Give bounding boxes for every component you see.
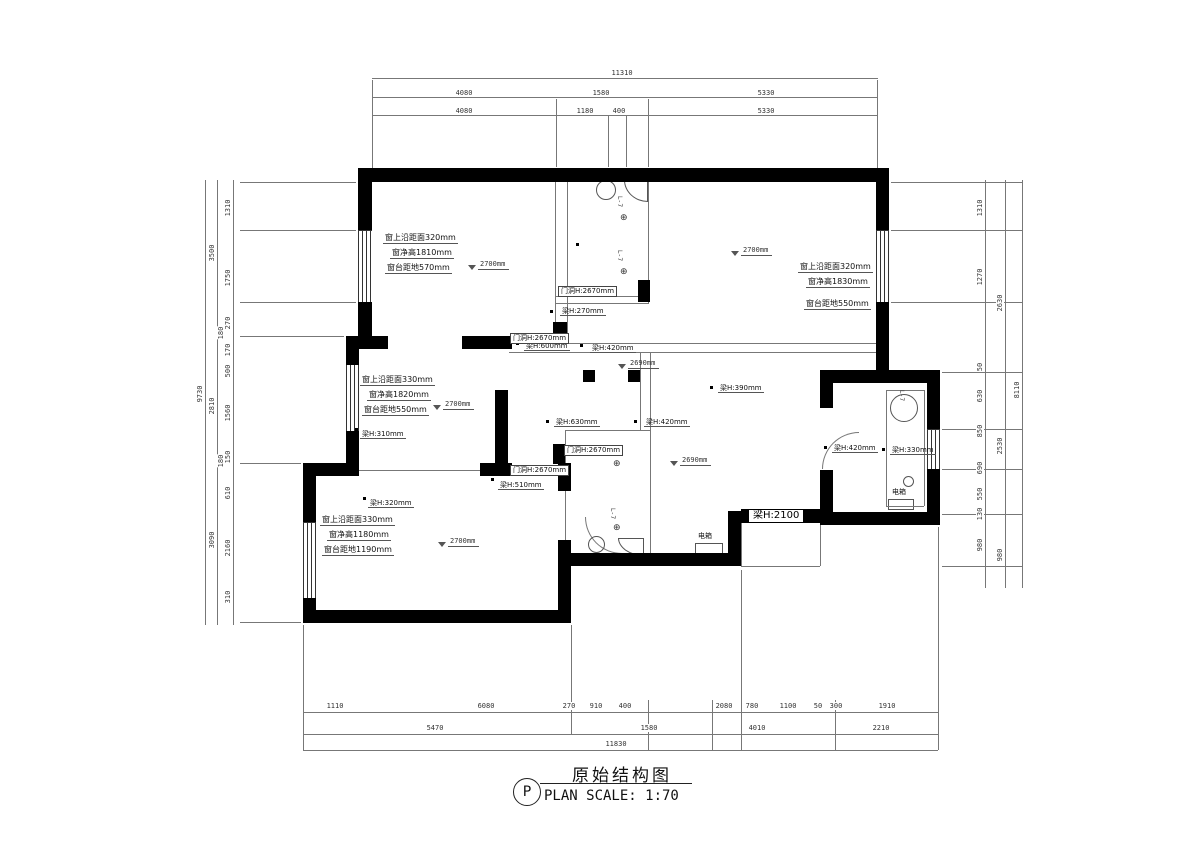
wall-segment: [358, 302, 372, 338]
dim-bottom-overall: 11830: [604, 740, 627, 748]
dim-bottom: 6080: [477, 702, 496, 710]
beam-note: 梁H:420mm: [832, 444, 878, 453]
leader-dot: [824, 446, 827, 449]
dim-bottom: 1910: [878, 702, 897, 710]
dim-right: 630: [976, 390, 984, 403]
thin-line: [359, 470, 480, 471]
window-note: 窗上沿距面330mm: [360, 375, 435, 386]
plan-tag-circle: P: [513, 778, 541, 806]
dim-left: 270: [224, 317, 232, 330]
window-note: 窗台距地570mm: [385, 263, 452, 274]
floor-drain-icon: ⊕: [620, 268, 628, 277]
dim-right: 980: [996, 549, 1004, 562]
thin-line: [372, 78, 878, 79]
door-opening-note: 门洞H:2670mm: [510, 465, 569, 476]
leader-dot: [580, 344, 583, 347]
beam-note: 梁H:270mm: [560, 307, 606, 316]
level-icon: [731, 251, 739, 256]
window-hatch: [303, 522, 316, 600]
thin-line: [741, 523, 742, 566]
dim-bottom: 50: [813, 702, 823, 710]
electrical-box-label: 电箱: [892, 488, 906, 496]
wall-segment: [303, 476, 316, 522]
beam-note: 梁H:310mm: [360, 430, 406, 439]
fixture-circle: [588, 536, 605, 553]
dim-right: 980: [976, 539, 984, 552]
riser-label: L-7: [898, 390, 905, 402]
dim-right: 1270: [976, 269, 984, 286]
thin-line: [240, 302, 356, 303]
window-note: 窗上沿距面320mm: [798, 262, 873, 273]
dim-top: 1180: [576, 107, 595, 115]
thin-line: [555, 303, 649, 304]
thin-line: [886, 506, 924, 507]
thin-line: [891, 230, 1022, 231]
dim-top: 5330: [757, 107, 776, 115]
dim-bottom: 5470: [426, 724, 445, 732]
riser-label: L-7: [609, 508, 616, 520]
leader-dot: [550, 310, 553, 313]
thin-line: [240, 336, 344, 337]
dim-bottom: 4010: [748, 724, 767, 732]
dim-top: 5330: [757, 89, 776, 97]
dim-right: 550: [976, 488, 984, 501]
wall-segment: [303, 598, 316, 623]
leader-dot: [363, 497, 366, 500]
beam-note: 梁H:420mm: [644, 418, 690, 427]
thin-line: [942, 372, 1022, 373]
leader-dot: [634, 420, 637, 423]
dim-left: 3090: [208, 532, 216, 549]
thin-line: [372, 97, 878, 98]
thin-line: [1005, 180, 1006, 588]
thin-line: [372, 115, 878, 116]
thin-line: [985, 180, 986, 588]
dim-left: 1310: [224, 200, 232, 217]
wall-segment: [927, 469, 940, 525]
electrical-box-symbol: [888, 499, 914, 510]
beam-note: 梁H:510mm: [498, 481, 544, 490]
dim-right: 130: [976, 508, 984, 521]
dim-left: 1560: [224, 405, 232, 422]
dim-left: 150: [224, 451, 232, 464]
dim-right: 50: [976, 363, 984, 371]
thin-line: [303, 734, 938, 735]
dim-bottom: 1110: [326, 702, 345, 710]
thin-line: [877, 80, 878, 168]
floor-plan: ⊕⊕⊕⊕ 11310 4080 1580 5330 4080 1180 400 …: [0, 0, 1200, 848]
riser-label: L-7: [616, 196, 623, 208]
wall-segment: [480, 463, 512, 476]
ceiling-height-marker: 2700mm: [731, 246, 772, 256]
wall-segment: [462, 336, 512, 349]
leader-dot: [355, 428, 358, 431]
window-note: 窗净高1810mm: [390, 248, 454, 259]
leader-dot: [710, 386, 713, 389]
dim-bottom: 2080: [715, 702, 734, 710]
dim-right: 690: [976, 462, 984, 475]
thin-line: [205, 180, 206, 625]
dim-bottom: 1100: [779, 702, 798, 710]
thin-line: [650, 430, 651, 553]
dim-left: 500: [224, 365, 232, 378]
thin-line: [626, 115, 627, 167]
window-note: 窗台距地550mm: [804, 299, 871, 310]
leader-dot: [576, 243, 579, 246]
thin-line: [303, 625, 304, 750]
level-icon: [618, 364, 626, 369]
dim-right: 1310: [976, 200, 984, 217]
thin-line: [820, 523, 821, 566]
electrical-box-label: 电箱: [698, 532, 712, 540]
dim-right: 2630: [996, 295, 1004, 312]
thin-line: [886, 390, 887, 506]
dim-left: 3500: [208, 245, 216, 262]
dim-left: 2160: [224, 540, 232, 557]
wall-segment: [495, 390, 508, 472]
beam-note: 梁H:390mm: [718, 384, 764, 393]
dim-top: 1580: [592, 89, 611, 97]
dim-left: 610: [224, 487, 232, 500]
dim-bottom: 1580: [640, 724, 659, 732]
ceiling-height-marker: 2700mm: [468, 260, 509, 270]
thin-line: [741, 570, 742, 750]
level-icon: [433, 405, 441, 410]
thin-line: [571, 625, 572, 735]
thin-line: [741, 566, 820, 567]
beam-note: 梁H:420mm: [590, 344, 636, 353]
wall-segment: [358, 182, 372, 230]
window-hatch: [358, 230, 372, 304]
door-opening-note: 门洞H:2670mm: [510, 333, 569, 344]
dim-left-leader: 180: [217, 455, 225, 468]
thin-line: [886, 390, 924, 391]
wall-segment: [358, 168, 889, 182]
window-note: 窗净高1180mm: [327, 530, 391, 541]
dim-left: 310: [224, 591, 232, 604]
level-icon: [438, 542, 446, 547]
thin-line: [648, 99, 649, 167]
thin-line: [303, 712, 938, 713]
thin-line: [1022, 180, 1023, 588]
window-note: 窗台距地1190mm: [322, 545, 394, 556]
dim-top: 400: [612, 107, 627, 115]
thin-line: [233, 180, 234, 625]
dim-right-overall: 8110: [1013, 382, 1021, 399]
door-opening-note: 门洞H:2670mm: [558, 286, 617, 297]
ceiling-height-marker: 2690mm: [670, 456, 711, 466]
thin-line: [217, 180, 218, 625]
thin-line: [240, 463, 301, 464]
beam-note: 梁H:630mm: [554, 418, 600, 427]
level-icon: [468, 265, 476, 270]
floor-drain-icon: ⊕: [620, 214, 628, 223]
beam-note-boxed: 梁H:2100: [748, 509, 804, 523]
dim-bottom: 910: [589, 702, 604, 710]
dim-bottom: 780: [745, 702, 760, 710]
dim-bottom: 2210: [872, 724, 891, 732]
wall-segment: [876, 182, 889, 230]
dim-left: 170: [224, 344, 232, 357]
ceiling-height-marker: 2700mm: [433, 400, 474, 410]
thin-line: [240, 622, 301, 623]
dim-bottom: 400: [618, 702, 633, 710]
wall-segment: [927, 383, 940, 429]
window-note: 窗上沿距面320mm: [383, 233, 458, 244]
wall-segment: [820, 512, 940, 525]
thin-line: [240, 230, 356, 231]
thin-line: [608, 115, 609, 167]
thin-line: [372, 80, 373, 168]
wall-segment: [820, 470, 833, 512]
floor-drain-icon: ⊕: [613, 460, 621, 469]
wall-segment: [638, 280, 650, 302]
window-hatch: [876, 230, 889, 304]
dim-right: 2530: [996, 438, 1004, 455]
window-note: 窗净高1830mm: [806, 277, 870, 288]
thin-line: [303, 750, 938, 751]
wall-segment: [346, 349, 359, 365]
thin-line: [712, 700, 713, 750]
dim-left: 1750: [224, 270, 232, 287]
ceiling-height-marker: 2700mm: [438, 537, 479, 547]
leader-dot: [882, 448, 885, 451]
wall-segment: [628, 370, 640, 382]
leader-dot: [546, 420, 549, 423]
beam-note: 梁H:330mm: [890, 446, 936, 455]
thin-line: [555, 182, 556, 336]
plan-scale-label: PLAN SCALE: 1:70: [544, 788, 679, 804]
dim-top: 4080: [455, 107, 474, 115]
dim-left-leader: 180: [217, 327, 225, 340]
title-divider: [540, 783, 692, 784]
window-hatch: [346, 363, 359, 433]
leader-dot: [491, 478, 494, 481]
wall-segment: [820, 383, 833, 408]
wall-segment: [303, 610, 571, 623]
dim-left: 2810: [208, 398, 216, 415]
dim-left-overall: 9730: [196, 386, 204, 403]
wall-segment: [346, 431, 359, 472]
dim-top-overall: 11310: [610, 69, 633, 77]
dim-bottom: 270: [562, 702, 577, 710]
level-icon: [670, 461, 678, 466]
riser-label: L-7: [616, 250, 623, 262]
thin-line: [556, 99, 557, 167]
ceiling-height-marker: 2690mm: [618, 359, 659, 369]
thin-line: [509, 352, 876, 353]
wall-segment: [820, 370, 940, 383]
window-note: 窗上沿距面330mm: [320, 515, 395, 526]
window-note: 窗净高1820mm: [367, 390, 431, 401]
fixture-corner: [624, 180, 648, 202]
thin-line: [938, 527, 939, 750]
thin-line: [565, 430, 650, 431]
thin-line: [891, 182, 1022, 183]
dim-bottom: 300: [829, 702, 844, 710]
beam-note: 梁H:320mm: [368, 499, 414, 508]
fixture-circle: [903, 476, 914, 487]
wall-segment: [583, 370, 595, 382]
fixture-circle: [596, 180, 616, 200]
window-note: 窗台距地550mm: [362, 405, 429, 416]
thin-line: [942, 566, 1022, 567]
door-opening-note: 门洞H:2670mm: [564, 445, 623, 456]
thin-line: [240, 182, 356, 183]
wall-segment: [571, 553, 741, 566]
dim-right: 850: [976, 425, 984, 438]
dim-top: 4080: [455, 89, 474, 97]
